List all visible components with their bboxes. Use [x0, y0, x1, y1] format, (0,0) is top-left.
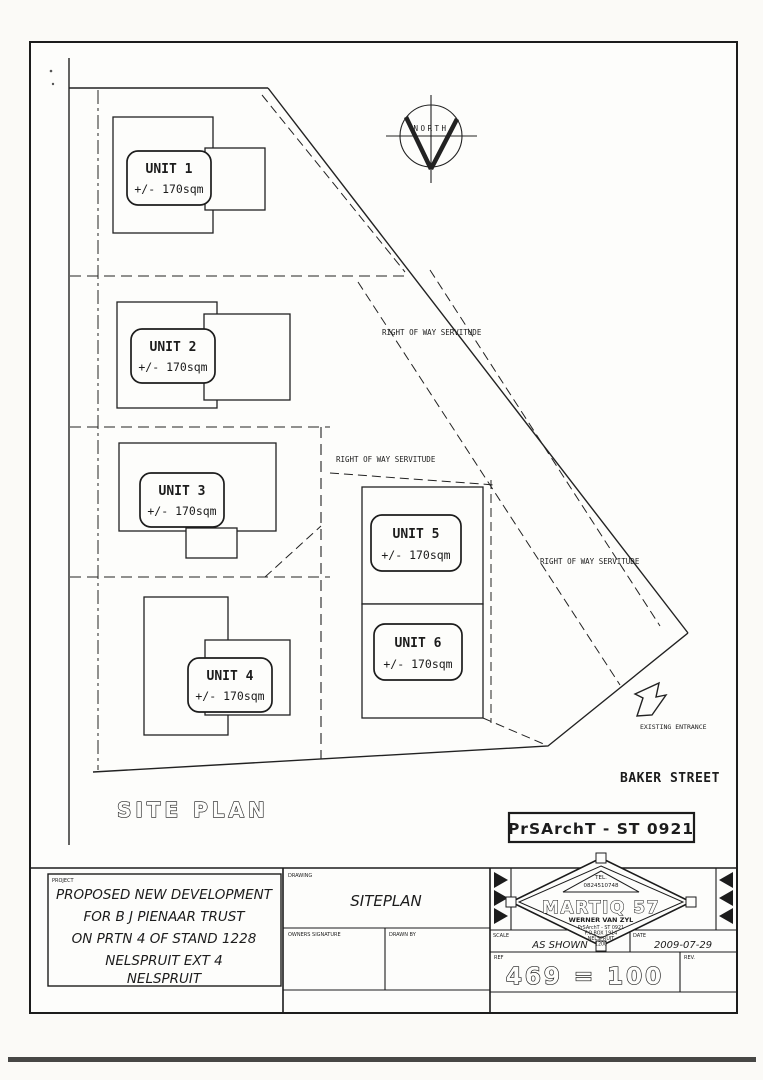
- scan-edge-artifact: [8, 1057, 756, 1062]
- logo-registration: PrSArchT - ST 0921: [578, 925, 624, 931]
- unit-4-area: +/- 170sqm: [195, 689, 264, 703]
- unit-5-label-box: [371, 515, 461, 571]
- drawing-label: DRAWING: [288, 873, 312, 879]
- scan-speck: [50, 70, 53, 73]
- date-label: DATE: [633, 933, 646, 939]
- unit-6-name: UNIT 6: [395, 636, 442, 651]
- unit-2-area: +/- 170sqm: [138, 360, 207, 374]
- entrance-label: EXISTING ENTRANCE: [640, 723, 707, 731]
- site-plan-sheet: NORTH UNIT 1 +/- 170sqm UNIT 2 +/- 170sq…: [0, 0, 763, 1080]
- sheet-number: 469 = 100: [506, 964, 664, 990]
- scale-value: AS SHOWN: [531, 940, 588, 951]
- project-label: PROJECT: [52, 878, 75, 884]
- scan-speck: [52, 83, 54, 85]
- logo-tel-label: TEL.: [594, 875, 607, 881]
- project-line-3: ON PRTN 4 OF STAND 1228: [72, 931, 257, 947]
- unit-5-name: UNIT 5: [393, 527, 440, 542]
- project-line-4: NELSPRUIT EXT 4: [105, 953, 223, 969]
- unit-2-house-wing: [204, 314, 290, 400]
- owners-signature-label: OWNERS SIGNATURE: [288, 932, 341, 938]
- diamond-tip-box-left: [506, 897, 516, 907]
- project-line-1: PROPOSED NEW DEVELOPMENT: [56, 887, 274, 903]
- diamond-tip-box-top: [596, 853, 606, 863]
- drawn-by-label: DRAWN BY: [389, 932, 417, 938]
- unit-6-area: +/- 170sqm: [383, 657, 452, 671]
- unit-4-label-box: [188, 658, 272, 712]
- unit-1-house-wing: [205, 148, 265, 210]
- logo-address-2: NELSPRUIT: [588, 936, 614, 942]
- logo-address-3: 1200: [595, 942, 607, 948]
- servitude-label-3: RIGHT OF WAY SERVITUDE: [540, 557, 640, 566]
- servitude-label-1: RIGHT OF WAY SERVITUDE: [382, 328, 482, 337]
- unit-3-area: +/- 170sqm: [147, 504, 216, 518]
- project-line-5: NELSPRUIT: [127, 971, 203, 987]
- unit-3-house-wing: [186, 528, 237, 558]
- number-label: REF: [494, 955, 504, 961]
- unit-6-label-box: [374, 624, 462, 680]
- architect-stamp: PrSArchT - ST 0921: [508, 813, 694, 842]
- unit-1-name: UNIT 1: [146, 162, 193, 177]
- servitude-label-2: RIGHT OF WAY SERVITUDE: [336, 455, 436, 464]
- logo-person: WERNER VAN ZYL: [569, 916, 634, 924]
- unit-1-label-box: [127, 151, 211, 205]
- diamond-tip-box-right: [686, 897, 696, 907]
- rev-label: REV.: [684, 955, 695, 961]
- scale-label: SCALE: [493, 933, 509, 939]
- unit-2-label-box: [131, 329, 215, 383]
- drawing-sheet: NORTH UNIT 1 +/- 170sqm UNIT 2 +/- 170sq…: [0, 0, 763, 1080]
- street-label: BAKER STREET: [620, 771, 720, 786]
- unit-3-label-box: [140, 473, 224, 527]
- project-line-2: FOR B J PIENAAR TRUST: [83, 909, 246, 925]
- logo-tel-value: 0824510748: [584, 883, 619, 889]
- unit-4-name: UNIT 4: [207, 669, 254, 684]
- date-value: 2009-07-29: [654, 940, 712, 951]
- drawing-name: SITEPLAN: [350, 892, 421, 910]
- north-label: NORTH: [413, 124, 448, 133]
- logo-company-name: MARTIQ 57: [542, 898, 660, 918]
- stamp-text: PrSArchT - ST 0921: [508, 820, 694, 838]
- unit-3-name: UNIT 3: [159, 484, 206, 499]
- unit-1-area: +/- 170sqm: [134, 182, 203, 196]
- logo-address-1: P.O.BOX 1914: [585, 931, 617, 937]
- site-plan-title: SITE PLAN: [117, 798, 269, 822]
- unit-2-name: UNIT 2: [150, 340, 197, 355]
- unit-5-area: +/- 170sqm: [381, 548, 450, 562]
